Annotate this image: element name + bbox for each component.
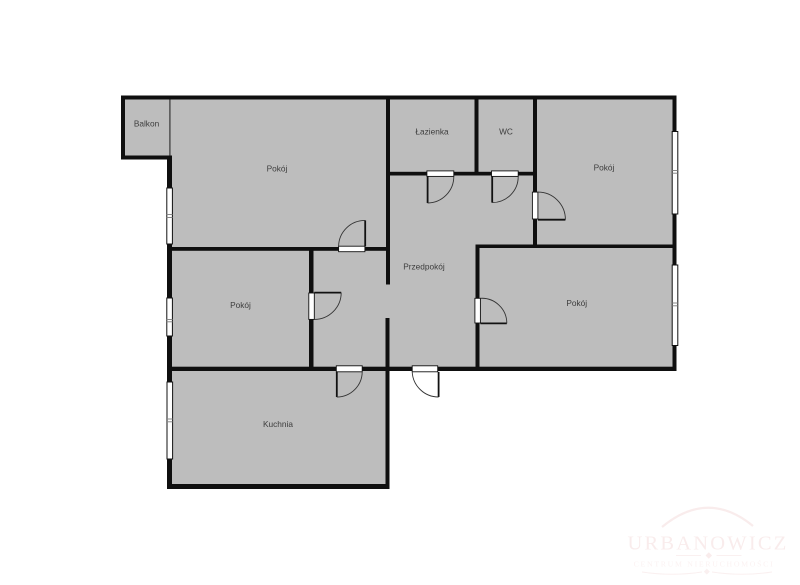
svg-text:Balkon: Balkon [134,119,160,129]
svg-text:Pokój: Pokój [267,164,288,174]
svg-text:Pokój: Pokój [566,298,587,308]
svg-text:Przedpokój: Przedpokój [403,262,445,272]
svg-text:Pokój: Pokój [594,163,615,173]
svg-text:WC: WC [499,127,513,137]
svg-text:CENTRUM NIERUCHOMOŚCI: CENTRUM NIERUCHOMOŚCI [634,559,775,569]
svg-text:Pokój: Pokój [230,300,251,310]
svg-text:Kuchnia: Kuchnia [263,419,293,429]
svg-text:Łazienka: Łazienka [415,127,449,137]
svg-text:URBANOWICZ: URBANOWICZ [628,533,789,555]
